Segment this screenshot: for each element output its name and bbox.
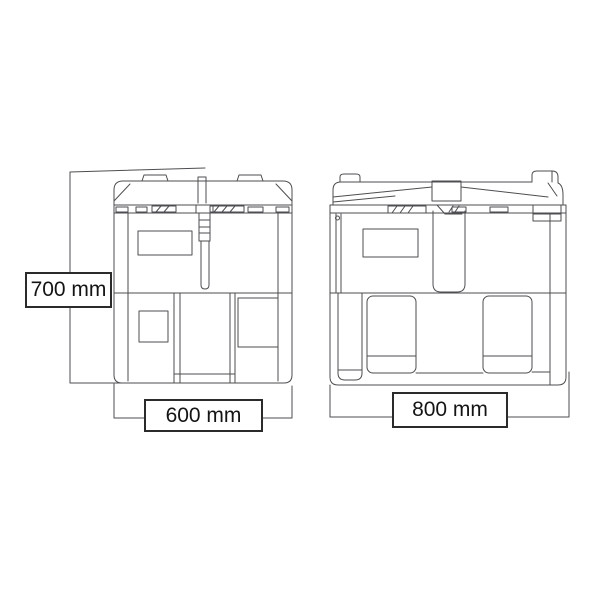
diagram-canvas: 700 mm 600 mm 800 mm: [0, 0, 600, 600]
left-tank-latch: [276, 207, 289, 212]
right-tank-lid-bump-right: [532, 171, 563, 205]
left-tank-latch: [152, 206, 176, 212]
left-tank-center-channel: [174, 293, 235, 383]
left-tank-inner-edges: [128, 213, 278, 381]
right-tank-lid-slants: [333, 187, 548, 202]
right-tank-latch: [490, 207, 508, 212]
left-tank-hose: [201, 241, 209, 289]
left-tank-latch: [248, 207, 263, 212]
right-tank-label-plate: [363, 229, 418, 257]
right-tank-latch: [452, 207, 466, 212]
left-tank-latch-hatch: [214, 206, 235, 212]
left-tank-latch: [136, 207, 147, 212]
right-tank-latch-hatch: [392, 206, 413, 213]
right-tank-foot-left: [338, 293, 362, 380]
right-tank-nozzle-recess: [433, 211, 465, 292]
left-tank-lower-square: [139, 311, 168, 342]
left-tank-label-plate: [138, 231, 192, 255]
left-tank-latch-hatch: [156, 206, 169, 212]
height-dimension-label: 700 mm: [25, 272, 112, 308]
right-tank-lid-box: [432, 181, 461, 201]
right-tank-drawing: [330, 171, 566, 385]
right-tank-latch: [388, 206, 426, 213]
left-tank-right-recess: [238, 298, 278, 347]
right-tank-pocket-left: [367, 296, 416, 373]
right-tank-body-outline: [330, 205, 566, 385]
right-tank-lid-bump-left: [340, 174, 360, 182]
left-tank-width-label: 600 mm: [144, 399, 263, 432]
left-tank-lid-bump-left: [142, 175, 168, 181]
left-tank-drawing: [114, 175, 292, 383]
left-tank-latch: [116, 207, 128, 212]
right-tank-width-label: 800 mm: [392, 392, 508, 428]
left-tank-lid-corner-detail: [114, 184, 292, 201]
right-tank-pocket-right: [483, 296, 532, 373]
left-tank-nozzle-segments: [199, 220, 210, 233]
left-tank-body-outline: [114, 205, 292, 383]
left-tank-lid-bump-right: [237, 175, 263, 181]
left-tank-lid: [114, 181, 292, 205]
right-tank-inner-edge-left: [336, 214, 341, 293]
